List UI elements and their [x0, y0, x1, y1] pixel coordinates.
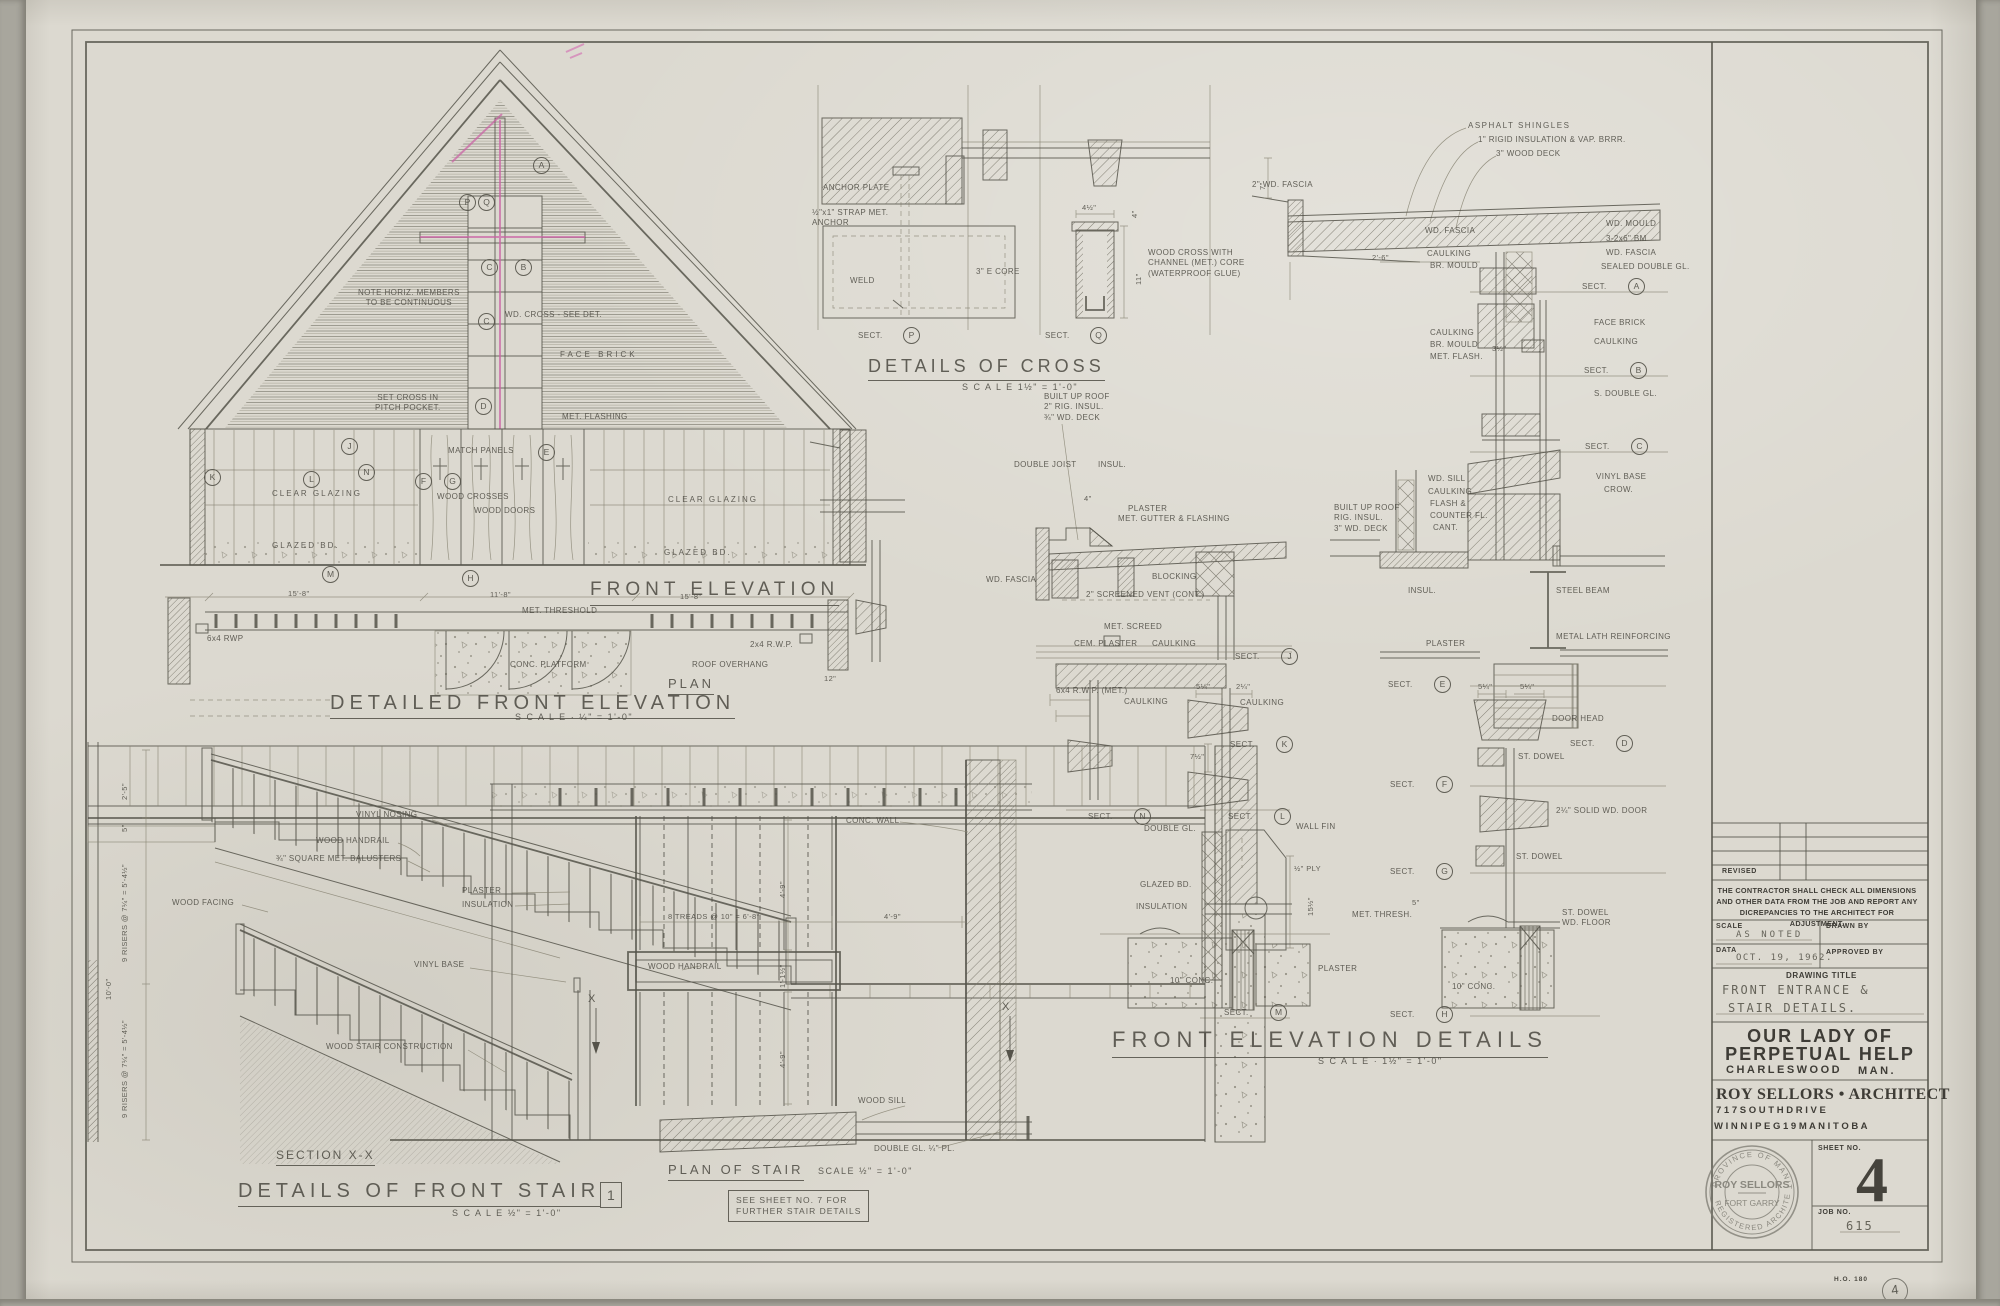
dim-4-9-v2: 4'-9": [778, 1051, 788, 1068]
marker-c1: C: [481, 259, 498, 276]
sect-g-label: SECT.: [1390, 867, 1415, 877]
face-brick-label-b: FACE BRICK: [1594, 318, 1646, 328]
wood-handrail-label-s: WOOD HANDRAIL: [316, 836, 390, 846]
dim-11-8: 11'-8": [490, 590, 511, 600]
sect-h-label: SECT.: [1390, 1010, 1415, 1020]
counter-fl-label: COUNTER FL.: [1430, 511, 1488, 521]
sect-l-label: SECT.: [1228, 812, 1253, 822]
wd-fascia-2-label: 2" WD. FASCIA: [1252, 180, 1313, 190]
sect-b-label: SECT.: [1584, 366, 1609, 376]
sect-k-marker: K: [1276, 736, 1293, 753]
risers-b-label: 9 RISERS @ 7¼" = 5'-4½": [120, 1020, 130, 1118]
sect-c-label: SECT.: [1585, 442, 1610, 452]
br-mould-label-a: BR. MOULD: [1430, 261, 1478, 271]
vinyl-base-label-a: VINYL BASE: [1596, 472, 1646, 482]
scan-edge-bottom: [0, 1299, 2000, 1306]
front-elevation-details-scale: S C A L E · 1½" = 1'-0": [1318, 1056, 1443, 1068]
met-gutter-label: MET. GUTTER & FLASHING: [1118, 514, 1230, 524]
sect-m-label: SECT.: [1224, 1008, 1249, 1018]
x-mark-right: X: [1002, 1000, 1010, 1014]
dim-4-gutter: 4": [1084, 494, 1092, 504]
conc-10-label-m: 10" CONC.: [1170, 976, 1213, 986]
sheet-number: 4: [1856, 1148, 1888, 1212]
marker-a: A: [533, 157, 550, 174]
wood-handrail-label-p: WOOD HANDRAIL: [648, 962, 722, 972]
marker-j: J: [341, 438, 358, 455]
sect-j-label: SECT.: [1235, 652, 1260, 662]
plan-of-stair-title: PLAN OF STAIR: [668, 1162, 804, 1181]
dim-5-25-k: 5¼": [1196, 682, 1210, 692]
scan-edge-right: [1976, 0, 2000, 1306]
metal-lath-label: METAL LATH REINFORCING: [1556, 632, 1671, 642]
wood-cross-channel-note: WOOD CROSS WITH CHANNEL (MET.) CORE (WAT…: [1148, 248, 1245, 279]
sect-k-label: SECT.: [1230, 740, 1255, 750]
dim-15-8-left: 15'-8": [288, 589, 310, 599]
rwp-left-label: 6x4 RWP: [207, 634, 243, 644]
clear-glazing-right: CLEAR GLAZING: [668, 495, 758, 505]
architect-name: ROY SELLORS • ARCHITECT: [1716, 1086, 1950, 1104]
sect-j-marker: J: [1281, 648, 1298, 665]
met-thresh-label-g: MET. THRESH.: [1352, 910, 1412, 920]
steel-beam-label: STEEL BEAM: [1556, 586, 1610, 596]
stair-detail-number: 1: [600, 1182, 622, 1208]
front-elevation-details-title: FRONT ELEVATION DETAILS: [1112, 1026, 1548, 1058]
details-front-stair-title: DETAILS OF FRONT STAIR: [238, 1178, 600, 1207]
front-elevation-title: FRONT ELEVATION: [590, 578, 839, 606]
built-up-roof-label-c: BUILT UP ROOF 2" RIG. INSUL. ¾" WD. DECK: [1044, 392, 1110, 423]
dim-11: 11": [1134, 273, 1144, 285]
marker-m: M: [322, 566, 339, 583]
caulking-label-c1: CAULKING: [1152, 639, 1196, 649]
detailed-front-elevation-scale: S C A L E · ¼" = 1'-0": [515, 712, 633, 724]
wd-cross-note: WD. CROSS - SEE DET.: [505, 310, 602, 320]
marker-l: L: [303, 471, 320, 488]
insulation-label-c: INSULATION: [1136, 902, 1187, 912]
vinyl-base-label-s: VINYL BASE: [414, 960, 464, 970]
ply-label: ½" PLY: [1294, 864, 1321, 874]
dim-5-25-b: 5¼": [1520, 682, 1534, 692]
annotation-layer: NOTE HORIZ. MEMBERS TO BE CONTINUOUS WD.…: [0, 0, 2000, 1306]
wood-deck-label: 3" WOOD DECK: [1496, 149, 1561, 159]
drawn-by-label: DRAWN BY: [1826, 923, 1869, 930]
marker-k: K: [204, 469, 221, 486]
sect-d-label: SECT.: [1570, 739, 1595, 749]
drawing-title-label: DRAWING TITLE: [1786, 971, 1857, 980]
sect-f-marker: F: [1436, 776, 1453, 793]
core-label: 3" E CORE: [976, 267, 1020, 277]
sect-q-label: SECT.: [1045, 331, 1070, 341]
clear-glazing-left: CLEAR GLAZING: [272, 489, 362, 499]
double-joist-label: DOUBLE JOIST: [1014, 460, 1077, 470]
risers-a-label: 9 RISERS @ 7¼" = 5'-4½": [120, 864, 130, 962]
crow-label: CROW.: [1604, 485, 1633, 495]
wall-fin-label: WALL FIN: [1296, 822, 1336, 832]
match-panels-label: MATCH PANELS: [448, 446, 514, 456]
st-dowel-label-b: ST. DOWEL: [1516, 852, 1563, 862]
strap-anchor-label: ½"x1" STRAP MET. ANCHOR: [812, 208, 888, 229]
st-dowel-floor-label: ST. DOWEL WD. FLOOR: [1562, 908, 1611, 929]
architect-address1: 7 1 7 S O U T H D R I V E: [1716, 1105, 1826, 1116]
dim-2-5-stair: 2'-5": [120, 783, 130, 800]
sect-f-label: SECT.: [1390, 780, 1415, 790]
beam-label: 3-2x6" BM: [1606, 234, 1647, 244]
s-double-gl-label: S. DOUBLE GL.: [1594, 389, 1657, 399]
marker-b: B: [515, 259, 532, 276]
rigid-insul-label: 1" RIGID INSULATION & VAP. BRRR.: [1478, 135, 1626, 145]
date-value: OCT. 19, 1962.: [1736, 953, 1833, 965]
marker-p: P: [459, 194, 476, 211]
met-threshold-label: MET. THRESHOLD: [522, 606, 597, 616]
job-number: 615: [1846, 1219, 1874, 1235]
marker-n: N: [358, 464, 375, 481]
insul-label-c: INSUL.: [1098, 460, 1126, 470]
face-brick-label: FACE BRICK: [560, 350, 638, 360]
contractor-note: THE CONTRACTOR SHALL CHECK ALL DIMENSION…: [1714, 886, 1920, 930]
wd-fascia-label-c: WD. FASCIA: [986, 575, 1036, 585]
plaster-label-c: PLASTER: [1128, 504, 1167, 514]
sect-m-marker: M: [1270, 1004, 1287, 1021]
glazed-bd-left: GLAZED BD.: [272, 541, 340, 551]
met-screed-label: MET. SCREED: [1104, 622, 1162, 632]
roof-overhang-label: ROOF OVERHANG: [692, 660, 768, 670]
section-xx-title: SECTION X-X: [276, 1148, 375, 1166]
details-front-stair-scale: S C A L E ½" = 1'-0": [452, 1208, 562, 1220]
dim-5-g: 5": [1412, 898, 1420, 908]
scan-board: .k{stroke:#55534a;fill:none;stroke-width…: [0, 0, 2000, 1306]
sect-e-label: SECT.: [1388, 680, 1413, 690]
dim-4-5: 4½": [1082, 203, 1096, 213]
wood-sill-label: WOOD SILL: [858, 1096, 906, 1106]
plan-of-stair-scale: SCALE ½" = 1'-0": [818, 1166, 913, 1178]
met-flashing-label: MET. FLASHING: [562, 412, 628, 422]
x-mark-left: X: [588, 992, 596, 1006]
cant-label: CANT.: [1433, 523, 1458, 533]
caulking-label-a: CAULKING: [1427, 249, 1471, 259]
dim-15-5: 15½": [1306, 897, 1316, 916]
marker-g: G: [444, 473, 461, 490]
drawing-title-line2: STAIR DETAILS.: [1728, 1001, 1857, 1017]
glazed-bd-label-c: GLAZED BD.: [1140, 880, 1192, 890]
conc-wall-label: CONC. WALL: [846, 816, 900, 826]
project-city: CHARLESWOOD: [1726, 1064, 1842, 1076]
vinyl-nosing-label: VINYL NOSING: [356, 810, 417, 820]
met-flash-label: MET. FLASH.: [1430, 352, 1483, 362]
print-code: H.O. 180: [1834, 1276, 1868, 1283]
plaster-label-s: PLASTER: [462, 886, 501, 896]
details-of-cross-title: DETAILS OF CROSS: [868, 355, 1105, 381]
plaster-label-r: PLASTER: [1426, 639, 1465, 649]
plaster-label-m: PLASTER: [1318, 964, 1357, 974]
sealed-double-label: SEALED DOUBLE GL.: [1601, 262, 1690, 272]
cem-plaster-label: CEM. PLASTER: [1074, 639, 1137, 649]
dim-4: 4": [1130, 210, 1140, 218]
project-name-line2: PERPETUAL HELP: [1712, 1044, 1928, 1065]
drawing-title-line1: FRONT ENTRANCE &: [1722, 983, 1870, 999]
sect-p-marker: P: [903, 327, 920, 344]
note-continuous: NOTE HORIZ. MEMBERS TO BE CONTINUOUS: [358, 288, 460, 309]
dim-2-6: 2'-6": [1372, 253, 1389, 263]
wood-crosses-label: WOOD CROSSES: [437, 492, 509, 502]
marker-q: Q: [478, 194, 495, 211]
glazed-bd-right: GLAZED BD.: [664, 548, 732, 558]
see-sheet-note: SEE SHEET NO. 7 FOR FURTHER STAIR DETAIL…: [728, 1190, 869, 1222]
approved-by-label: APPROVED BY: [1826, 949, 1884, 956]
treads-label: 8 TREADS @ 10" = 6'-8": [668, 912, 760, 922]
blueprint-sheet: .k{stroke:#55534a;fill:none;stroke-width…: [0, 0, 2000, 1306]
sect-b-marker: B: [1630, 362, 1647, 379]
dim-15-8-right: 15'-8": [680, 592, 702, 602]
insulation-label-s: INSULATION: [462, 900, 513, 910]
solid-door-label: 2¼" SOLID WD. DOOR: [1556, 806, 1647, 816]
wd-mould-label: WD. MOULD: [1606, 219, 1656, 229]
marker-c2: C: [478, 313, 495, 330]
dim-2-25-k: 2¼": [1236, 682, 1250, 692]
sect-p-label: SECT.: [858, 331, 883, 341]
marker-e: E: [538, 444, 555, 461]
dim-4-9-h: 4'-9": [884, 912, 901, 922]
marker-d: D: [475, 398, 492, 415]
marker-h: H: [462, 570, 479, 587]
conc-10-label-h: 10" CONC.: [1452, 982, 1495, 992]
wd-fascia-label-b: WD. FASCIA: [1606, 248, 1656, 258]
sect-e-marker: E: [1434, 676, 1451, 693]
vent-label: 2" SCREENED VENT (CONT.): [1086, 590, 1205, 600]
architect-address2: W I N N I P E G 1 9 M A N I T O B A: [1714, 1121, 1867, 1132]
date-label: DATA: [1716, 947, 1737, 954]
dim-7-5: 7½": [1190, 752, 1204, 762]
revised-label: REVISED: [1722, 868, 1757, 875]
sect-n-label: SECT.: [1088, 812, 1113, 822]
sect-q-marker: Q: [1090, 327, 1107, 344]
caulking-label-c3: CAULKING: [1240, 698, 1284, 708]
wood-facing-label: WOOD FACING: [172, 898, 234, 908]
caulking-label-c2: CAULKING: [1124, 697, 1168, 707]
wood-doors-label: WOOD DOORS: [474, 506, 535, 516]
sect-g-marker: G: [1436, 863, 1453, 880]
double-gl-label-c: DOUBLE GL.: [1144, 824, 1196, 834]
dim-4-9-v1: 4'-9": [778, 881, 788, 898]
sheet-no-label: SHEET NO.: [1818, 1145, 1861, 1152]
sect-d-marker: D: [1616, 735, 1633, 752]
scale-value: AS NOTED: [1736, 930, 1803, 942]
sect-l-marker: L: [1274, 808, 1291, 825]
balusters-label: ¾" SQUARE MET. BALUSTERS: [276, 854, 401, 864]
flash-label: FLASH &: [1430, 499, 1466, 509]
asphalt-shingles-label: ASPHALT SHINGLES: [1468, 121, 1570, 131]
wd-fascia-label-a: WD. FASCIA: [1425, 226, 1475, 236]
sect-c-marker: C: [1631, 438, 1648, 455]
br-mould-label-b: BR. MOULD: [1430, 340, 1478, 350]
insul-label: INSUL.: [1408, 586, 1436, 596]
dim-3-5: 3½": [1492, 344, 1506, 354]
weld-label: WELD: [850, 276, 875, 286]
caulking-label-b: CAULKING: [1594, 337, 1638, 347]
project-province: MAN.: [1858, 1065, 1896, 1077]
rwp-met-label: 6x4 R.W.P. (MET.): [1056, 686, 1128, 696]
anchor-plate-label: ANCHOR PLATE: [823, 183, 889, 193]
sect-a-marker: A: [1628, 278, 1645, 295]
job-no-label: JOB NO.: [1818, 1209, 1851, 1216]
wood-stair-label: WOOD STAIR CONSTRUCTION: [326, 1042, 453, 1052]
dim-5-stair: 5": [120, 824, 130, 832]
set-cross-note: SET CROSS IN PITCH POCKET.: [375, 393, 441, 414]
sect-h-marker: H: [1436, 1006, 1453, 1023]
dim-12: 12": [824, 674, 836, 684]
caulking-label-c: CAULKING: [1430, 328, 1474, 338]
blocking-label: BLOCKING: [1152, 572, 1197, 582]
sect-n-marker: N: [1134, 808, 1151, 825]
dim-10-0: 10'-0": [104, 978, 114, 1000]
sect-a-label: SECT.: [1582, 282, 1607, 292]
rwp-right-label: 2x4 R.W.P.: [750, 640, 793, 650]
double-gl-label-p: DOUBLE GL. ¼" PL.: [874, 1144, 955, 1154]
scale-label: SCALE: [1716, 923, 1743, 930]
dim-1-1: 1'-1½": [778, 964, 788, 988]
wd-sill-label: WD. SILL: [1428, 474, 1465, 484]
st-dowel-label-a: ST. DOWEL: [1518, 752, 1565, 762]
built-up-roof-label-r: BUILT UP ROOF RIG. INSUL. 3" WD. DECK: [1334, 503, 1400, 534]
scan-edge-left: [0, 0, 26, 1306]
dim-5-25-a: 5¼": [1478, 682, 1492, 692]
marker-f: F: [415, 473, 432, 490]
caulking-label-d: CAULKING: [1428, 487, 1472, 497]
door-head-label: DOOR HEAD: [1552, 714, 1604, 724]
conc-platform-label: CONC. PLATFORM: [510, 660, 587, 670]
